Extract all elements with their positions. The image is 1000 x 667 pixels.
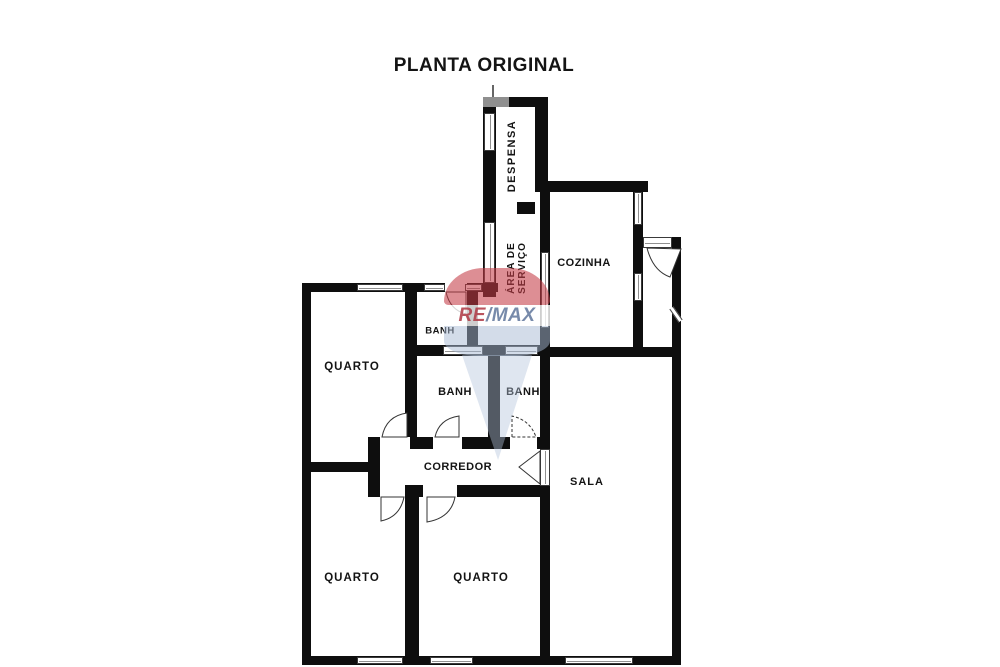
window-quarto2-bottom [357, 657, 403, 664]
floor-plan-page: PLANTA ORIGINAL [0, 0, 1000, 667]
window-sala-bottom [565, 657, 633, 664]
window-quarto1-top [357, 284, 403, 291]
room-label-area-servico-line2: SERVIÇO [517, 242, 528, 294]
door-swing-quarto2 [381, 497, 404, 521]
window-banh-top-2 [465, 284, 482, 291]
wall-banh-divider [488, 352, 500, 440]
window-banh-right-top [505, 346, 538, 355]
page-title: PLANTA ORIGINAL [394, 55, 575, 77]
wall-sala-top [540, 347, 681, 357]
door-swing-banh-right [512, 416, 536, 437]
door-opening-quarto2 [380, 485, 405, 497]
door-swing-sala [519, 451, 540, 484]
balloon-brand-band: RE/MAX [444, 305, 550, 326]
window-area-servico-left [484, 222, 495, 283]
window-despensa-left [484, 113, 495, 151]
wall-corredor-left [368, 437, 380, 497]
door-band-cozinha-varanda [643, 237, 672, 248]
room-label-cozinha: COZINHA [557, 257, 611, 269]
door-opening-quarto1 [380, 437, 410, 449]
door-swing-banh-top [446, 292, 466, 314]
wall-despensa-bottom-stub [517, 202, 535, 214]
window-banh-top-1 [424, 284, 445, 291]
wall-left-outer [302, 283, 311, 665]
room-label-quarto-top-left: QUARTO [324, 361, 380, 373]
room-label-despensa: DESPENSA [506, 120, 518, 193]
room-label-banh-top: BANH [425, 326, 454, 337]
room-label-area-servico: ÁREA DE SERVIÇO [506, 242, 528, 294]
wall-despensa-top-gray [483, 97, 509, 107]
wall-antenna-mark [492, 85, 494, 97]
wall-quarto2-quarto3-divider [405, 485, 419, 656]
brand-text-slashmax: /MAX [486, 305, 536, 326]
door-opening-banh-left [433, 437, 462, 449]
room-label-quarto-bottom-left: QUARTO [324, 572, 380, 584]
wall-quarto1-quarto2-divider [302, 462, 368, 472]
room-label-banh-left: BANH [438, 386, 472, 398]
door-band-corredor-sala [540, 449, 550, 486]
door-opening-banh-top [445, 283, 467, 292]
window-cozinha-right-upper [634, 192, 642, 225]
wall-cozinha-top [535, 181, 648, 192]
wall-banh-top-right [467, 287, 478, 349]
wall-despensa-right [535, 97, 548, 185]
wall-right-outer [672, 237, 681, 665]
door-opening-quarto3 [423, 485, 457, 497]
door-swing-banh-left [435, 416, 459, 437]
room-label-area-servico-line1: ÁREA DE [506, 242, 517, 294]
window-banh-left-top [443, 346, 483, 355]
window-area-cozinha [541, 252, 549, 328]
room-label-banh-right: BANH [506, 386, 540, 398]
room-label-corredor: CORREDOR [424, 461, 492, 473]
room-label-sala: SALA [570, 476, 604, 488]
door-swing-quarto3 [427, 497, 455, 522]
door-opening-banh-right [510, 437, 537, 449]
window-quarto3-bottom [430, 657, 473, 664]
room-label-quarto-bottom-middle: QUARTO [453, 572, 509, 584]
window-cozinha-right-lower [634, 273, 642, 301]
wall-quarto1-right [405, 283, 417, 449]
door-swing-quarto1 [382, 413, 407, 437]
